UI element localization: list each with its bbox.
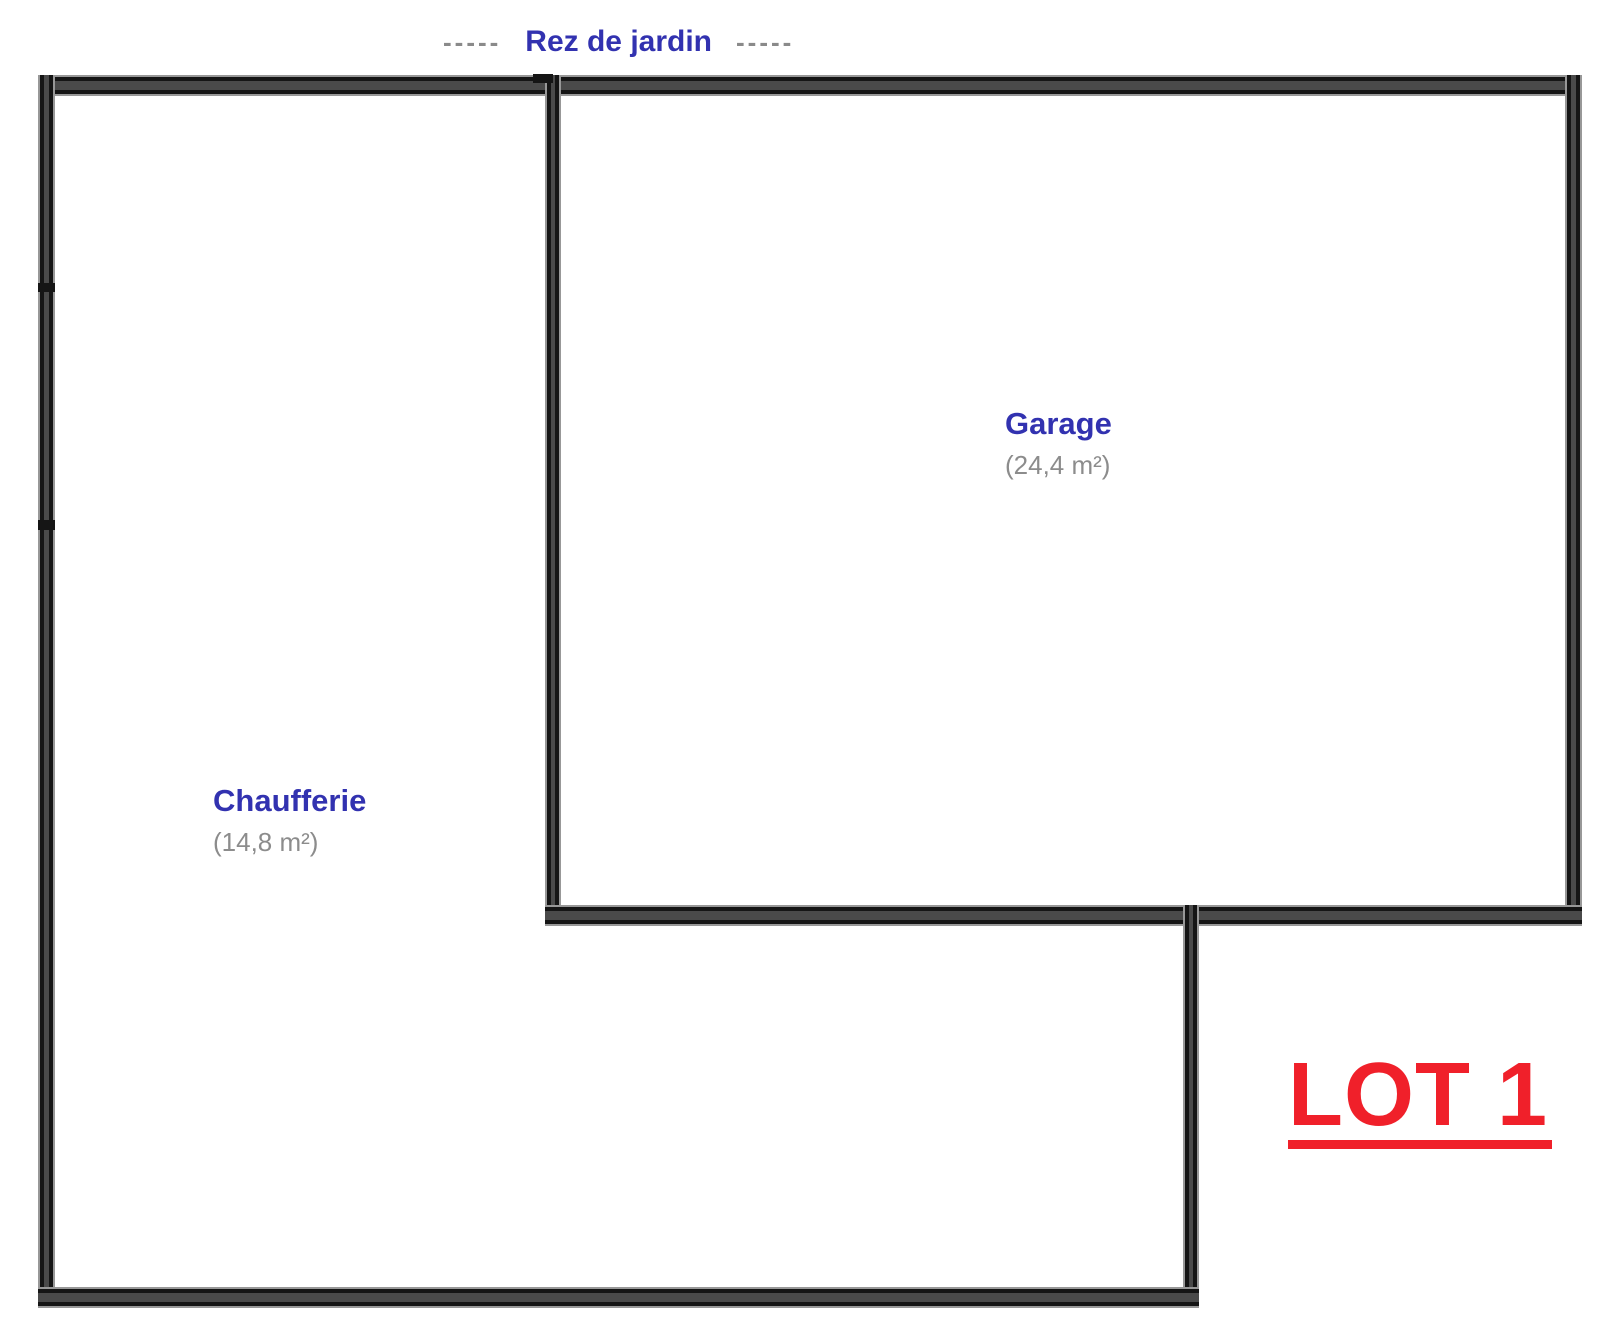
plan-title: ----- Rez de jardin -----: [443, 24, 794, 60]
wall-notch-right: [1183, 905, 1199, 1308]
title-dashes-right: -----: [736, 24, 794, 60]
wall-joint-tick: [38, 520, 55, 530]
wall-left: [38, 75, 55, 1308]
room-name: Garage: [1005, 405, 1112, 443]
plan-title-text: Rez de jardin: [525, 24, 712, 60]
room-area: (14,8 m²): [213, 826, 366, 858]
room-label-chaufferie: Chaufferie (14,8 m²): [213, 782, 366, 858]
wall-top: [38, 75, 1582, 96]
room-label-garage: Garage (24,4 m²): [1005, 405, 1112, 481]
wall-joint-tick: [38, 283, 55, 292]
wall-right: [1565, 75, 1582, 926]
wall-divider: [545, 75, 561, 926]
lot-label: LOT 1: [1288, 1050, 1552, 1149]
wall-bottom: [38, 1287, 1199, 1308]
wall-joint-tick: [533, 74, 553, 83]
title-dashes-left: -----: [443, 24, 501, 60]
room-name: Chaufferie: [213, 782, 366, 820]
floor-plan-canvas: ----- Rez de jardin ----- Garage (24,4 m…: [0, 0, 1600, 1340]
wall-garage-bottom: [545, 905, 1582, 926]
room-area: (24,4 m²): [1005, 449, 1112, 481]
